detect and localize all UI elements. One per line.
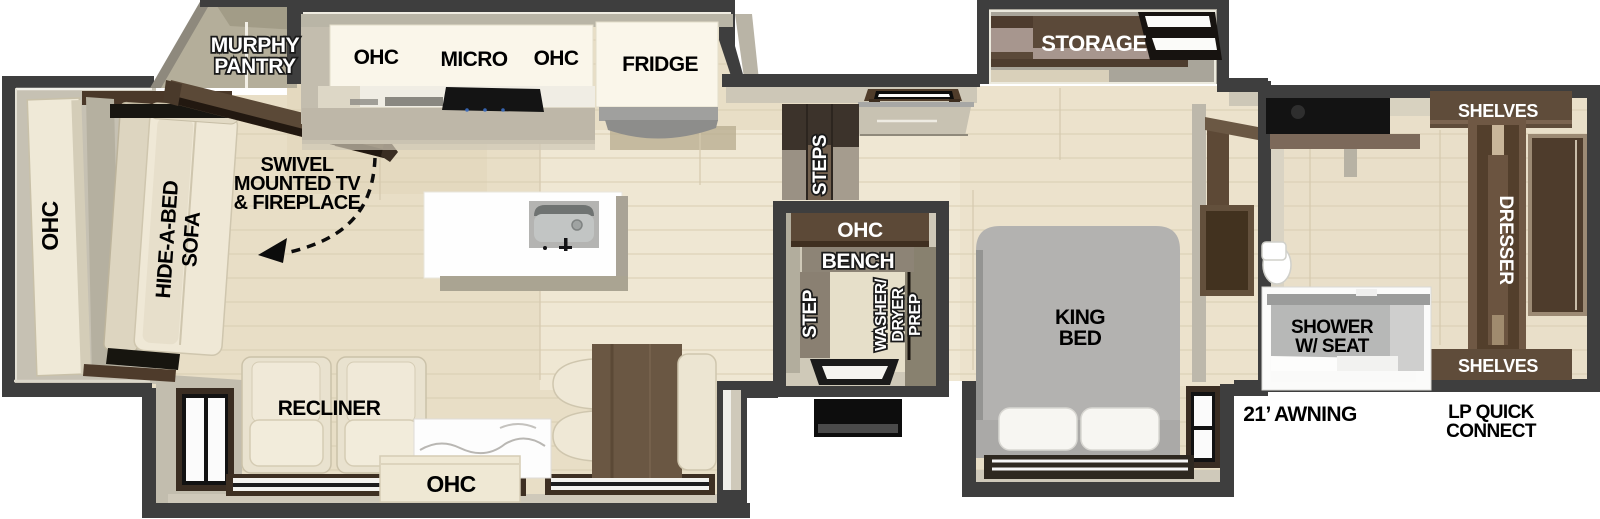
svg-text:RECLINER: RECLINER [278, 397, 381, 420]
svg-text:SOFA: SOFA [178, 211, 205, 268]
svg-text:STEPS: STEPS [810, 135, 831, 195]
svg-text:SHELVES: SHELVES [1458, 101, 1538, 121]
svg-text:W/ SEAT: W/ SEAT [1295, 336, 1370, 357]
svg-text:DRESSER: DRESSER [1495, 195, 1516, 285]
svg-text:FRIDGE: FRIDGE [622, 53, 698, 76]
svg-text:CONNECT: CONNECT [1446, 421, 1537, 442]
svg-text:DRYER: DRYER [890, 287, 907, 341]
svg-text:PANTRY: PANTRY [214, 55, 296, 78]
svg-text:OHC: OHC [426, 471, 475, 497]
svg-text:MICRO: MICRO [441, 48, 508, 71]
svg-text:OHC: OHC [837, 219, 883, 242]
svg-text:PREP: PREP [907, 293, 924, 336]
svg-text:KING: KING [1055, 306, 1105, 329]
svg-text:STORAGE: STORAGE [1041, 31, 1147, 56]
svg-text:21’ AWNING: 21’ AWNING [1243, 403, 1357, 426]
svg-text:OHC: OHC [37, 201, 63, 250]
svg-text:SHELVES: SHELVES [1458, 356, 1538, 376]
svg-text:STEP: STEP [800, 289, 821, 338]
svg-text:LP QUICK: LP QUICK [1448, 402, 1535, 423]
svg-text:BED: BED [1059, 327, 1102, 350]
svg-text:& FIREPLACE: & FIREPLACE [234, 192, 361, 214]
svg-text:OHC: OHC [354, 46, 399, 69]
svg-text:BENCH: BENCH [822, 250, 895, 273]
svg-text:OHC: OHC [534, 47, 579, 70]
svg-text:WASHER/: WASHER/ [873, 278, 890, 351]
svg-text:MURPHY: MURPHY [211, 34, 300, 57]
svg-text:SHOWER: SHOWER [1291, 317, 1374, 338]
